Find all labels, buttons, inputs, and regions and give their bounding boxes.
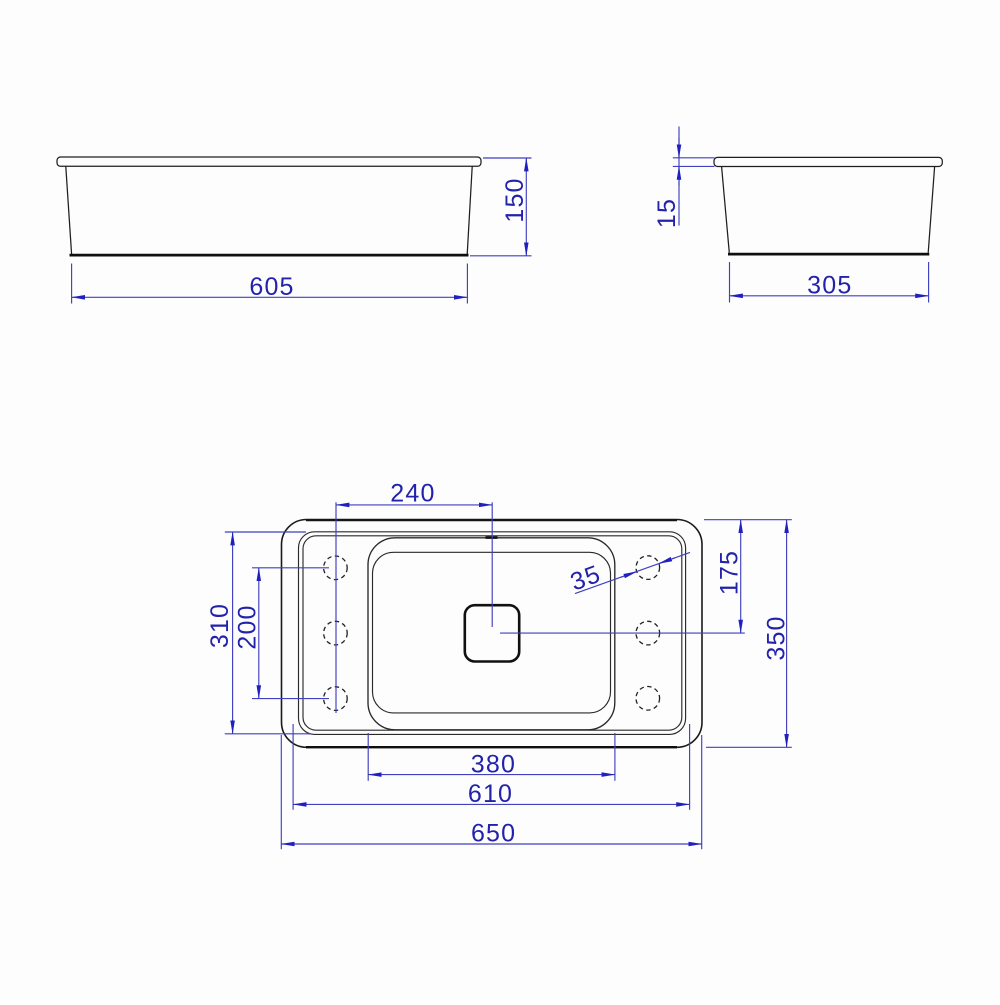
svg-text:610: 610 (468, 780, 513, 808)
svg-text:650: 650 (471, 820, 516, 848)
svg-text:310: 310 (206, 603, 234, 648)
svg-text:350: 350 (762, 615, 790, 660)
svg-text:35: 35 (567, 560, 605, 597)
svg-text:200: 200 (233, 604, 261, 649)
svg-text:305: 305 (807, 271, 852, 299)
svg-text:175: 175 (716, 550, 744, 595)
svg-text:150: 150 (501, 177, 529, 222)
svg-text:605: 605 (249, 273, 294, 301)
svg-text:240: 240 (390, 480, 435, 508)
svg-text:380: 380 (471, 750, 516, 778)
svg-text:15: 15 (653, 198, 681, 228)
